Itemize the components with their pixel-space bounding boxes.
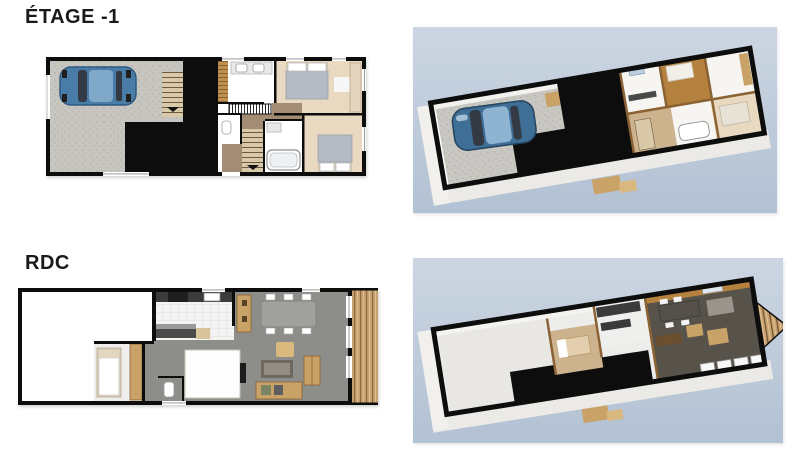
pouf — [276, 342, 294, 357]
bedroom-3d — [549, 324, 603, 375]
rdc-2d-drawing — [18, 288, 378, 405]
etage-1-2d-drawing — [46, 57, 366, 176]
sink — [204, 293, 220, 301]
wood-terrace — [352, 290, 378, 403]
closet — [350, 63, 361, 112]
white-room — [185, 350, 240, 398]
etage-1-2d-plan — [46, 57, 366, 176]
pouf-3d — [686, 323, 704, 337]
car-icon — [60, 67, 136, 105]
bedroom-closet — [130, 344, 142, 400]
bathroom-2 — [265, 121, 302, 172]
stairs — [242, 129, 264, 172]
floor-title-etage-1: ÉTAGE -1 — [25, 6, 120, 29]
coffee-table — [261, 360, 293, 378]
night-zone — [183, 57, 362, 176]
tv — [240, 363, 246, 383]
etage-1-3d-view — [413, 27, 777, 213]
radiator — [229, 104, 271, 114]
rdc-3d-drawing — [413, 258, 783, 443]
wc-room — [218, 115, 240, 144]
bathroom-1 — [218, 61, 274, 103]
rdc-2d-plan — [18, 288, 378, 405]
dining-set — [261, 294, 316, 334]
unexcavated-area — [125, 122, 183, 172]
rdc-3d-view — [413, 258, 783, 443]
bed-double-1 — [286, 62, 328, 99]
kitchen — [156, 292, 234, 340]
sofa-bench — [256, 382, 302, 399]
bedroom — [94, 343, 142, 401]
bed-double-2 — [318, 135, 352, 172]
floor-title-rdc: RDC — [25, 252, 70, 275]
etage-1-3d-drawing — [413, 27, 777, 213]
floorplan-sheet: ÉTAGE -1 RDC — [0, 0, 800, 468]
